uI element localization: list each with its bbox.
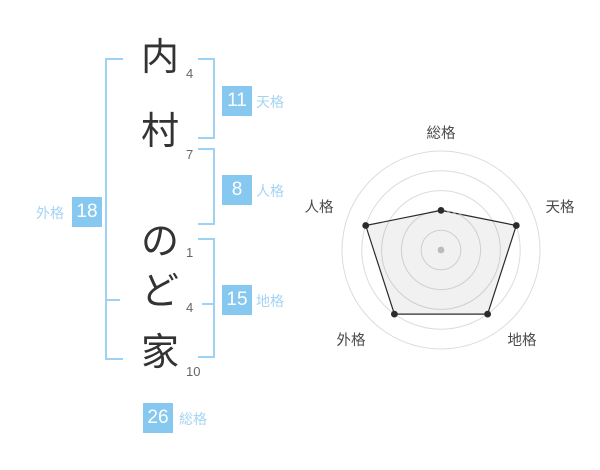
radar-data-polygon [366,210,517,314]
radar-vertex-dot [513,222,520,229]
jinkaku-bracket-top-arm [198,148,215,150]
jinkaku-value-badge: 8 [222,175,252,205]
tenkaku-label[interactable]: 天格 [256,94,284,110]
jinkaku-bracket-vertical [213,148,215,225]
radar-label-soukaku: 総格 [427,125,456,142]
radar-label-tenkaku: 天格 [546,199,575,216]
name-char-4: 家 [130,329,190,377]
gaikaku-bracket-tick [107,299,120,301]
radar-vertex-dot [438,207,445,214]
gaikaku-bracket-vertical [105,58,107,360]
gaikaku-bracket-bottom-arm [105,358,123,360]
chikaku-bracket-tick [202,303,215,305]
gaikaku-bracket-top-arm [105,58,123,60]
soukaku-value-badge: 26 [143,403,173,433]
stroke-count-4: 10 [186,364,212,380]
gaikaku-label[interactable]: 外格 [36,205,64,221]
soukaku-label[interactable]: 総格 [179,411,207,427]
chikaku-bracket-vertical [213,238,215,358]
chikaku-bracket-bottom-arm [198,356,215,358]
radar-label-chikaku: 地格 [508,332,537,349]
radar-vertex-dot [484,311,491,318]
gaikaku-value-badge: 18 [72,197,102,227]
fortune-radar-chart: 総格 天格 地格 外格 人格 [290,110,590,370]
jinkaku-bracket-bottom-arm [198,223,215,225]
name-char-3: ど [130,268,190,316]
radar-center-dot [438,247,445,254]
radar-label-jinkaku: 人格 [305,199,334,216]
name-fortune-result-panel: 内 村 の ど 家 4 7 1 4 10 11 天格 8 人格 15 地格 外格… [0,0,600,470]
name-char-1: 村 [130,108,190,156]
radar-grid-and-data [342,151,540,349]
name-char-0: 内 [130,34,190,82]
stroke-count-0: 4 [186,66,212,82]
radar-vertex-dot [391,311,398,318]
tenkaku-bracket-vertical [213,58,215,139]
tenkaku-bracket-bottom-arm [198,137,215,139]
tenkaku-value-badge: 11 [222,86,252,116]
tenkaku-bracket-top-arm [198,58,215,60]
stroke-count-2: 1 [186,245,212,261]
radar-vertex-dot [362,222,369,229]
jinkaku-label[interactable]: 人格 [256,183,284,199]
chikaku-bracket-top-arm [198,238,215,240]
chikaku-value-badge: 15 [222,285,252,315]
name-char-2: の [130,218,190,266]
radar-label-gaikaku: 外格 [337,332,366,349]
chikaku-label[interactable]: 地格 [256,293,284,309]
